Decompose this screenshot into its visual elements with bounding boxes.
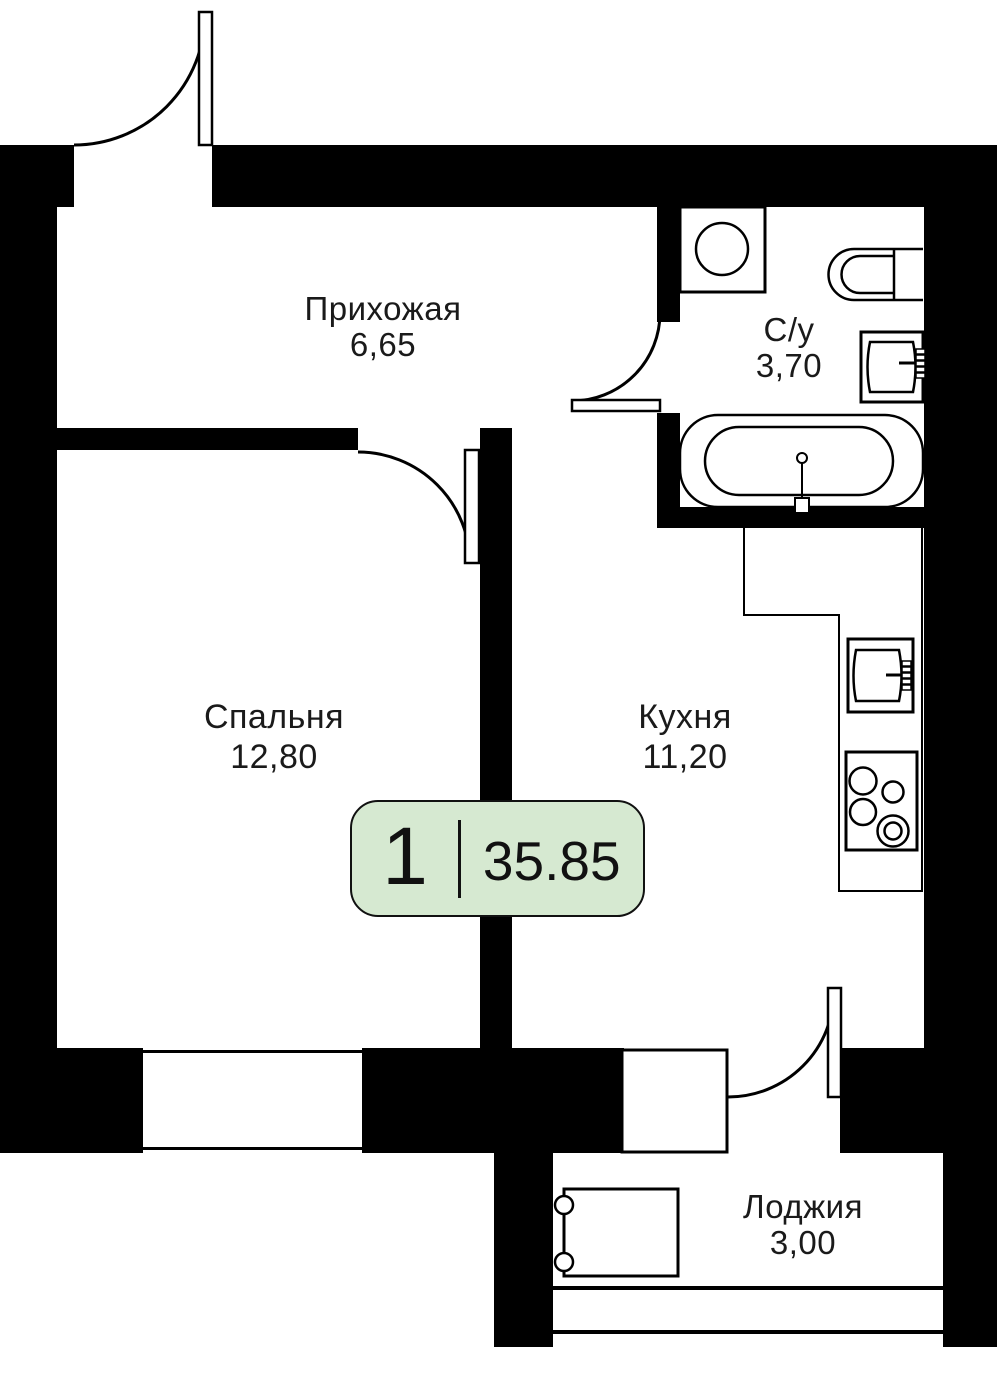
entry-door-swing-arc — [74, 14, 205, 145]
wall-bathroom-bottom — [657, 507, 924, 528]
loggia-door — [728, 988, 841, 1097]
wall-bottom-middle — [362, 1048, 624, 1153]
wall-bathroom-left-upper — [657, 207, 680, 322]
loggia-door-leaf — [828, 988, 841, 1097]
room-area: 11,20 — [638, 737, 732, 777]
room-name: Прихожая — [305, 291, 462, 327]
loggia-cabinet-icon — [555, 1189, 678, 1276]
wall-bottom-left — [0, 1048, 143, 1153]
wall-left — [0, 145, 57, 1153]
wall-hallway-bedroom — [57, 428, 358, 450]
room-label-bedroom: Спальня 12,80 — [204, 697, 344, 777]
bathroom-door — [572, 313, 660, 411]
bathroom-door-swing-arc — [572, 313, 660, 401]
room-area: 6,65 — [305, 327, 462, 363]
room-name: Кухня — [638, 697, 732, 737]
room-area: 3,70 — [756, 348, 822, 384]
bedroom-door-leaf — [465, 450, 479, 563]
wall-loggia-right — [943, 1153, 997, 1347]
room-name: Лоджия — [743, 1189, 863, 1225]
bathroom-sink-icon — [861, 332, 925, 402]
wall-bedroom-kitchen — [480, 428, 512, 1048]
walls — [0, 145, 997, 1347]
rooms-count: 1 — [352, 816, 458, 902]
stove-icon — [846, 752, 917, 850]
room-area: 3,00 — [743, 1225, 863, 1261]
floor-plan-drawing — [0, 0, 1000, 1375]
wall-loggia-left — [494, 1153, 553, 1347]
room-label-hallway: Прихожая 6,65 — [305, 291, 462, 363]
room-label-bathroom: С/у 3,70 — [756, 312, 822, 384]
floor-plan: Прихожая 6,65 С/у 3,70 Спальня 12,80 Кух… — [0, 0, 1000, 1375]
bathroom-door-leaf — [572, 400, 660, 411]
kitchen-counter — [744, 528, 922, 891]
washing-machine-icon — [680, 207, 765, 292]
loggia-door-swing-arc — [728, 991, 834, 1097]
room-label-kitchen: Кухня 11,20 — [638, 697, 732, 777]
bedroom-window — [143, 1048, 362, 1153]
kitchen-sink-icon — [848, 639, 913, 712]
bathroom-faucet-icon — [916, 349, 925, 378]
room-label-loggia: Лоджия 3,00 — [743, 1189, 863, 1261]
bedroom-door — [358, 450, 479, 564]
bathtub-icon — [680, 415, 923, 513]
wall-bottom-right — [840, 1048, 997, 1153]
toilet-icon — [829, 249, 924, 300]
room-name: Спальня — [204, 697, 344, 737]
entry-door — [74, 12, 212, 145]
wall-top — [212, 145, 997, 207]
bedroom-door-swing-arc — [358, 452, 470, 564]
entry-door-leaf — [199, 12, 212, 145]
loggia-glazing — [553, 1286, 943, 1334]
kitchen-faucet-icon — [902, 661, 911, 690]
room-area: 12,80 — [204, 737, 344, 777]
area-badge: 1 35.85 — [350, 800, 645, 917]
total-area: 35.85 — [461, 828, 644, 889]
kitchen-window — [622, 1050, 727, 1152]
room-name: С/у — [756, 312, 822, 348]
wall-right — [924, 145, 997, 1153]
